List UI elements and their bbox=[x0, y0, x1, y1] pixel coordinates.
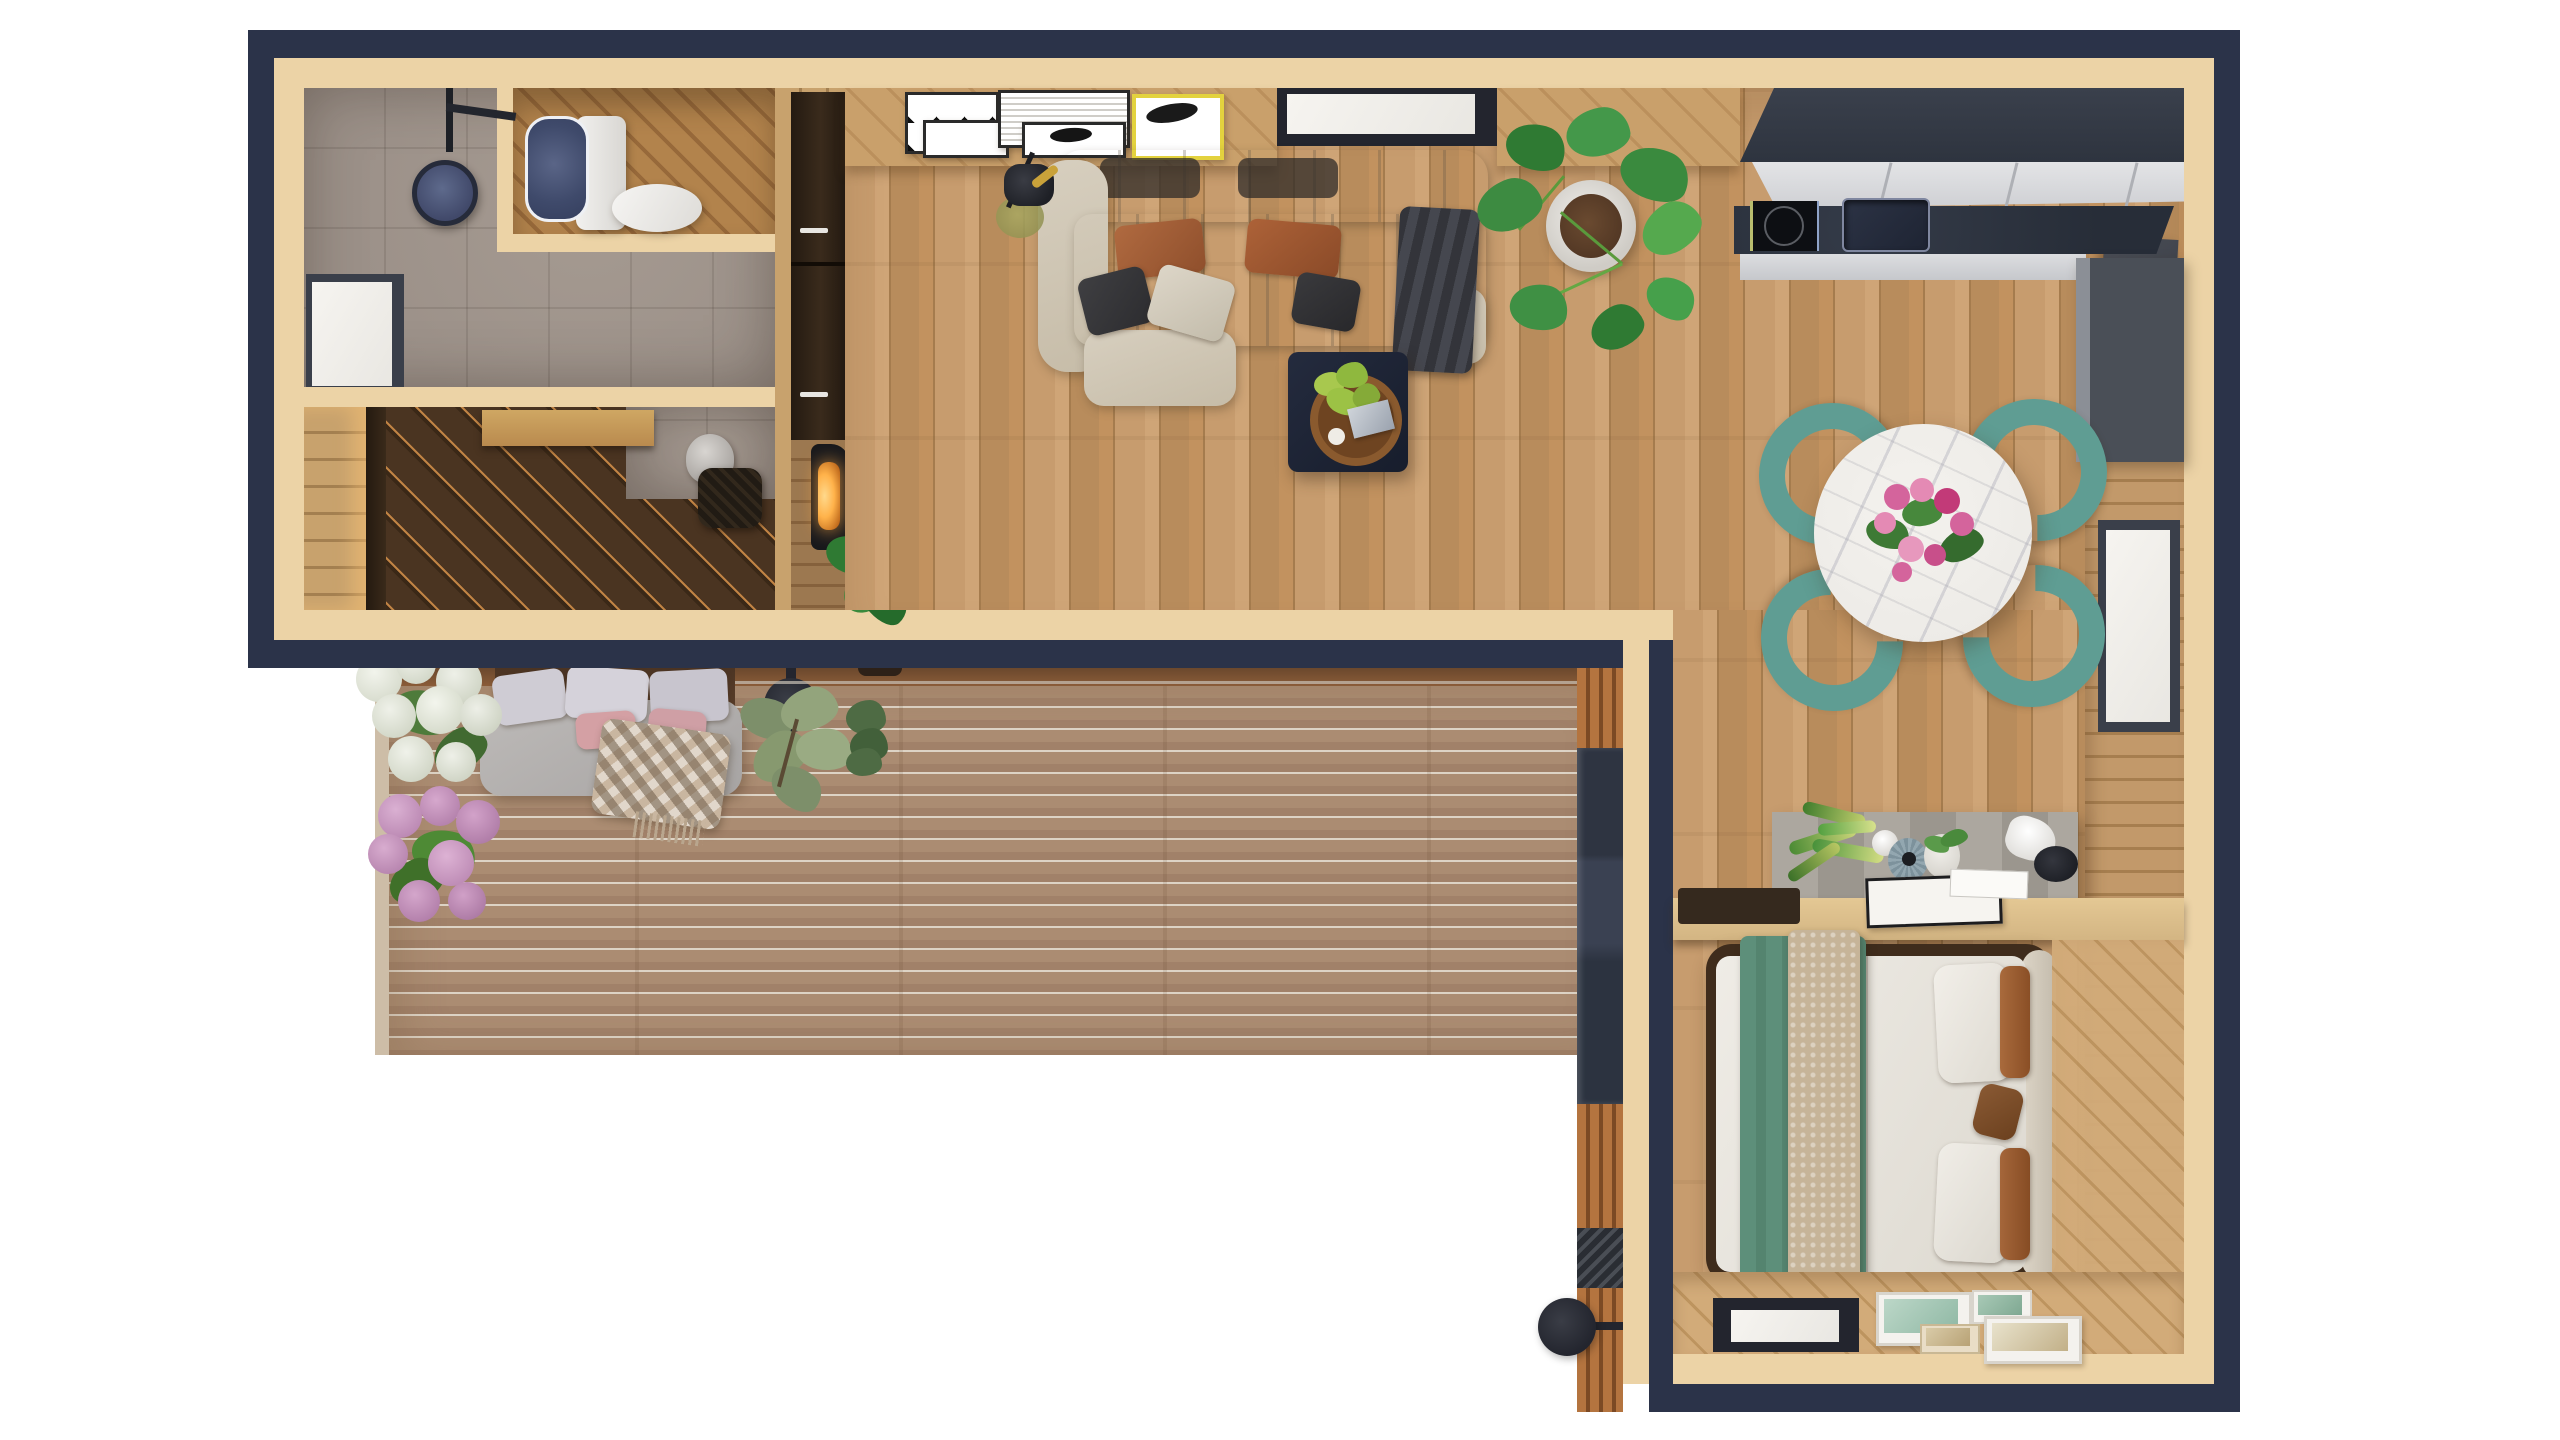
monstera-leaves bbox=[1470, 108, 1720, 358]
wall-outer-right bbox=[2214, 30, 2240, 1412]
closet-lit-strip bbox=[304, 407, 366, 610]
pink-hydrangea-plant bbox=[368, 790, 518, 930]
bathroom-window-glass bbox=[312, 282, 392, 386]
cabinet-handle-1 bbox=[800, 228, 828, 233]
wall-outer-left bbox=[248, 30, 274, 668]
wall-wing-bottom-inner bbox=[1673, 1354, 2184, 1384]
desk-vase-hole bbox=[1902, 852, 1916, 866]
kitchen-front-white bbox=[1740, 254, 2086, 280]
wall-corner-patch bbox=[1623, 610, 1673, 640]
desk-potted-plant-leaves bbox=[1924, 828, 1968, 864]
tall-cabinet bbox=[791, 92, 845, 440]
fireplace-glow bbox=[818, 462, 840, 530]
bed-knit-throw bbox=[1788, 930, 1860, 1294]
wall-wing-left bbox=[1649, 640, 1673, 1412]
wall-outer-top bbox=[248, 30, 2240, 58]
shower-arm bbox=[446, 88, 453, 152]
cooktop-ring bbox=[1764, 206, 1804, 246]
art-print-3-image bbox=[1926, 1328, 1970, 1346]
desk-card bbox=[1950, 869, 2029, 900]
art-print-2-image bbox=[1978, 1295, 2022, 1315]
shower-head bbox=[412, 160, 478, 226]
toilet-bowl bbox=[612, 184, 702, 232]
dining-window-glass bbox=[2106, 530, 2170, 722]
dining-bouquet bbox=[1862, 478, 1992, 588]
porch-vent bbox=[1577, 1228, 1623, 1288]
floor-plan-scene bbox=[0, 0, 2560, 1440]
sofa-back-shadow-1 bbox=[1100, 158, 1200, 198]
white-hydrangea-plant bbox=[352, 650, 512, 800]
olive-shrub bbox=[730, 688, 860, 813]
nook-wall-horizontal bbox=[497, 234, 775, 252]
desk-lamp-base bbox=[2034, 846, 2078, 882]
bed-bolster-rust-2 bbox=[2000, 1148, 2030, 1260]
sofa-pillow-dark-2 bbox=[1290, 271, 1362, 333]
wall-wing-bottom bbox=[1649, 1384, 2240, 1412]
wall-inner-top bbox=[274, 58, 2214, 88]
bed-bolster-rust-1 bbox=[2000, 966, 2030, 1078]
toilet-lid bbox=[525, 116, 589, 222]
sofa-back-shadow-2 bbox=[1238, 158, 1338, 198]
wall-wing-left-outer bbox=[1623, 610, 1649, 1384]
porch-glass-door bbox=[1577, 748, 1623, 1104]
sofa-pillow-rust-2 bbox=[1244, 218, 1342, 280]
art-print-4-image bbox=[1992, 1323, 2068, 1351]
porch-lamp bbox=[1538, 1298, 1596, 1356]
cabinet-handle-2 bbox=[800, 392, 828, 397]
desk-dark-tray bbox=[1678, 888, 1800, 924]
kitchen-sink bbox=[1842, 198, 1930, 252]
closet-door-panel bbox=[366, 407, 386, 610]
poster-small bbox=[923, 120, 1009, 158]
bathroom-bottom-wall bbox=[304, 387, 775, 407]
sliding-door-rail bbox=[700, 681, 1577, 684]
wall-inner-right bbox=[2184, 88, 2214, 1384]
living-window-glass bbox=[1287, 94, 1475, 134]
sofa-throw-charcoal bbox=[1392, 206, 1480, 374]
outdoor-checker-throw bbox=[590, 717, 732, 830]
wall-inner-bottom-bar bbox=[274, 610, 1623, 640]
small-shrub bbox=[846, 700, 890, 774]
wall-inner-left bbox=[274, 88, 304, 640]
closet-chair bbox=[698, 468, 762, 528]
wall-outer-bottom-bar bbox=[248, 640, 1649, 668]
coffee-table-candle bbox=[1328, 428, 1345, 445]
kitchen-upper-cabinets bbox=[1740, 88, 2184, 162]
cabinet-divider-line bbox=[791, 262, 845, 266]
vanity-desk bbox=[482, 410, 654, 446]
floor-window-glass bbox=[1731, 1310, 1839, 1342]
